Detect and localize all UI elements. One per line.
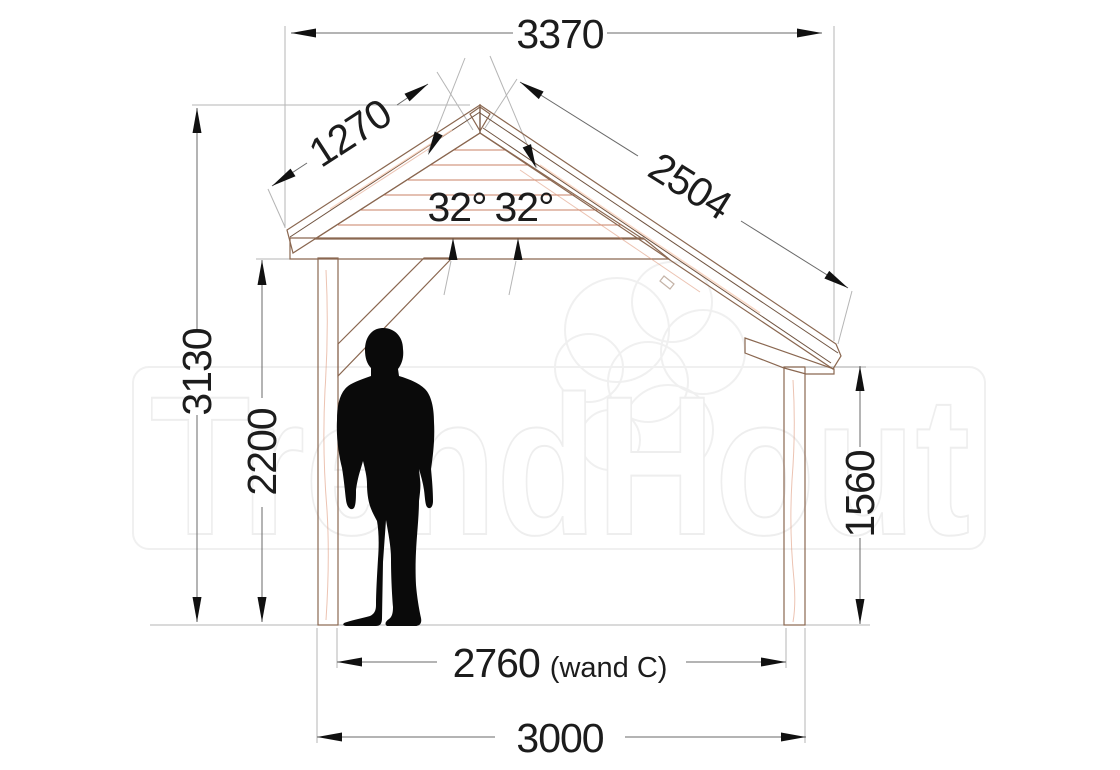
dim-angle-left-arrow-down — [428, 132, 443, 156]
dim-angle-right-arrow-up — [514, 238, 523, 260]
technical-drawing-page: TrendHout — [0, 0, 1120, 770]
dim-right-post-height-arrow-bottom — [856, 599, 865, 624]
dim-top-width-arrow-right — [797, 29, 822, 38]
dim-left-rafter-arrow-bottom — [272, 169, 296, 186]
roof-right-fascia — [480, 105, 841, 369]
dim-right-rafter-label: 2504 — [641, 143, 740, 228]
dim-inner-span-note: (wand C) — [550, 652, 668, 684]
dim-left-rafter-arrow-top — [405, 84, 429, 101]
dim-inner-span-label: 2760(wand C) — [453, 640, 668, 686]
dim-top-width-label: 3370 — [516, 11, 603, 57]
veranda-dimension-drawing: TrendHout — [0, 0, 1120, 770]
dim-left-rafter: 1270 — [272, 84, 428, 186]
roof-left-grain — [350, 148, 430, 200]
dim-outer-span: 3000 — [317, 715, 806, 761]
dim-angle-left-label: 32° — [427, 184, 486, 230]
dim-outer-span-arrow-left — [317, 733, 342, 742]
ext-right-rafter-low — [838, 291, 852, 344]
leader-angle-left-lower — [444, 261, 451, 295]
gable-beam — [290, 238, 669, 259]
dim-inner-span-arrow-left — [337, 658, 362, 667]
dim-passage-height-label: 2200 — [239, 408, 285, 495]
dim-right-rafter-arrow-bottom — [824, 271, 848, 288]
ext-left-rafter-low — [268, 189, 285, 227]
ext-right-rafter-high — [485, 79, 517, 128]
dim-inner-span-value: 2760 — [453, 640, 540, 686]
dim-right-rafter-arrow-top — [520, 82, 544, 99]
dim-passage-height-arrow-bottom — [258, 597, 267, 622]
dim-overall-height-label: 3130 — [174, 328, 220, 415]
leader-angle-right-lower — [509, 261, 516, 295]
dim-top-width-arrow-left — [291, 29, 316, 38]
dim-overall-height-arrow-top — [193, 108, 202, 133]
dim-right-post-height-label: 1560 — [837, 450, 883, 537]
roof-right-deck-line — [480, 113, 838, 353]
dim-left-rafter-label: 1270 — [301, 90, 399, 176]
dim-outer-span-arrow-right — [781, 733, 806, 742]
dim-inner-span: 2760(wand C) — [337, 640, 786, 686]
dim-top-width: 3370 — [291, 11, 822, 57]
dim-overall-height-arrow-bottom — [193, 597, 202, 622]
dim-angle-right-label: 32° — [494, 184, 553, 230]
dim-inner-span-arrow-right — [761, 658, 786, 667]
dim-passage-height-arrow-top — [258, 260, 267, 285]
dim-angle-left-arrow-up — [449, 238, 458, 260]
roof-right-notch — [660, 276, 674, 289]
dim-outer-span-label: 3000 — [516, 715, 603, 761]
roof-right — [480, 105, 841, 369]
dim-roof-angles: 32° 32° — [427, 132, 553, 261]
